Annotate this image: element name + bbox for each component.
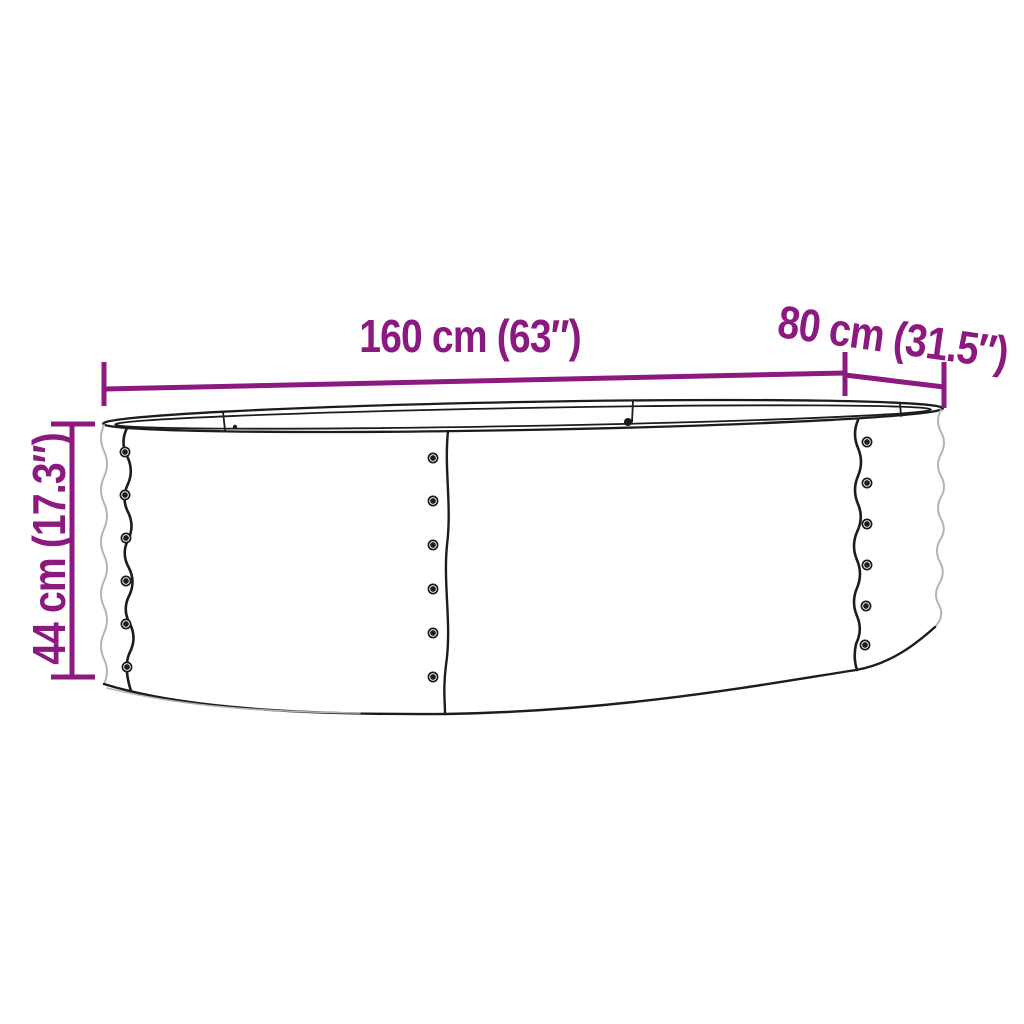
planter-body — [101, 394, 944, 714]
dimension-diagram: 160 cm (63″) 80 cm (31.5″) 44 cm (17.3″) — [0, 0, 1024, 1024]
right-corrugated-edge — [935, 410, 944, 627]
rim-rivet-left — [233, 425, 237, 429]
rim-rivet-back — [624, 418, 632, 426]
bottom-edge-highlight — [107, 688, 360, 713]
rim-seam-back — [632, 401, 633, 422]
planter-rim — [103, 394, 943, 437]
rim-seam-left — [223, 412, 225, 430]
right-seam — [854, 420, 861, 670]
planter-illustration — [0, 0, 1024, 1024]
length-dimension-label: 160 cm (63″) — [359, 313, 581, 359]
rim-seam-right — [900, 403, 901, 416]
front-seam-rivets — [428, 453, 437, 681]
bottom-edge — [104, 627, 935, 714]
left-seam — [124, 428, 134, 691]
right-seam-rivets — [860, 437, 871, 649]
height-dimension-label: 44 cm (17.3″) — [26, 433, 72, 665]
front-seam — [444, 431, 448, 713]
left-corrugated-edge — [101, 425, 134, 691]
